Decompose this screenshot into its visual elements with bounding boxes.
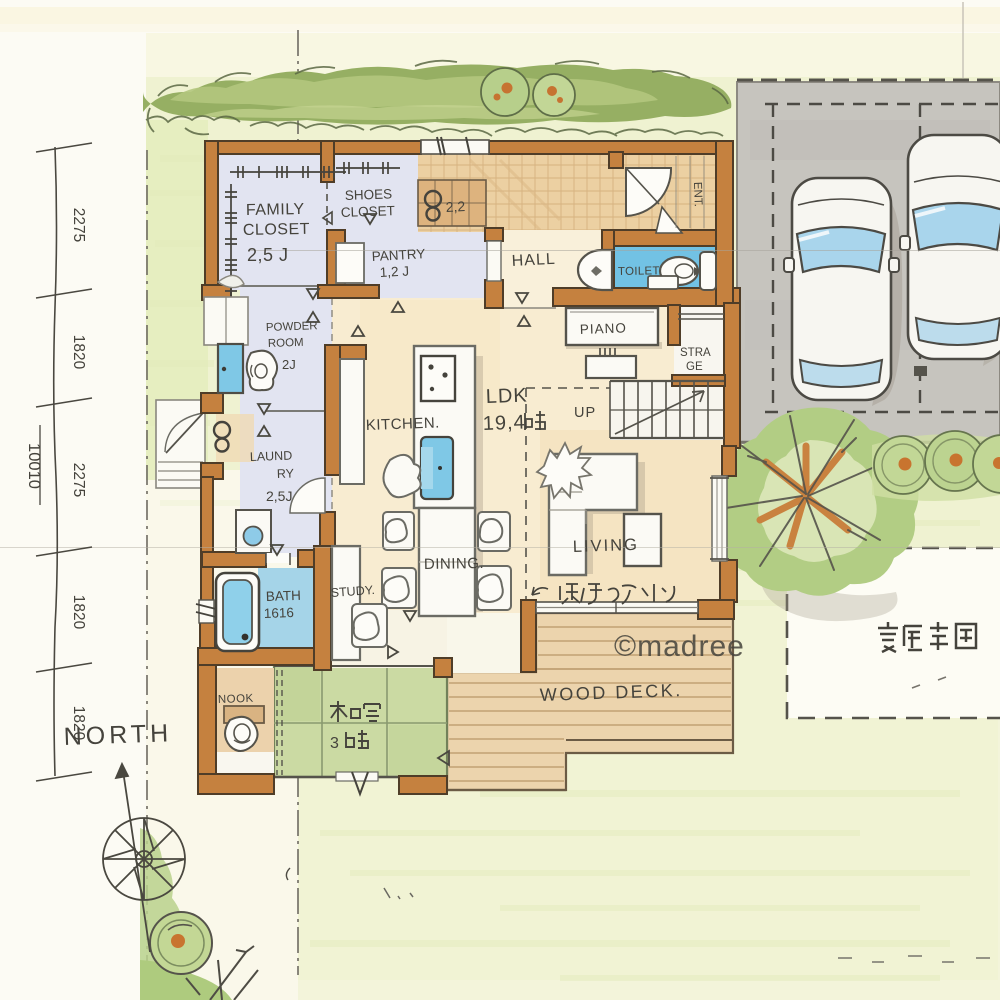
svg-text:LAUND: LAUND <box>250 449 293 464</box>
svg-text:UP: UP <box>574 405 596 421</box>
svg-text:LDK: LDK <box>485 385 528 408</box>
svg-text:CLOSET: CLOSET <box>243 221 310 239</box>
svg-text:2275: 2275 <box>70 463 87 497</box>
svg-text:3: 3 <box>330 735 339 752</box>
svg-text:BATH: BATH <box>266 588 302 604</box>
svg-text:ENT.: ENT. <box>691 182 704 207</box>
svg-text:RY: RY <box>277 466 295 481</box>
svg-text:GE: GE <box>686 361 703 373</box>
svg-text:19,4: 19,4 <box>482 412 526 435</box>
svg-text:2,5J: 2,5J <box>266 488 292 504</box>
svg-text:DINING.: DINING. <box>424 555 484 573</box>
svg-text:2275: 2275 <box>70 208 87 242</box>
svg-text:TOILET: TOILET <box>618 265 660 278</box>
svg-text:1820: 1820 <box>70 595 87 630</box>
svg-text:2J: 2J <box>282 357 296 372</box>
svg-text:KITCHEN.: KITCHEN. <box>366 414 441 434</box>
svg-text:LIVING: LIVING <box>573 536 640 556</box>
svg-text:PIANO: PIANO <box>580 320 628 337</box>
svg-text:©madree: ©madree <box>614 630 745 663</box>
svg-text:1820: 1820 <box>70 335 87 370</box>
svg-text:PANTRY: PANTRY <box>371 246 425 264</box>
svg-text:CLOSET: CLOSET <box>341 203 396 220</box>
svg-text:SHOES: SHOES <box>345 186 393 203</box>
svg-text:STRA: STRA <box>680 347 711 359</box>
svg-text:FAMILY: FAMILY <box>246 201 305 219</box>
svg-text:HALL: HALL <box>511 251 556 270</box>
svg-text:POWDER: POWDER <box>266 320 318 334</box>
svg-text:2,5 J: 2,5 J <box>247 245 289 265</box>
svg-text:1,2 J: 1,2 J <box>379 263 409 280</box>
svg-text:2,2: 2,2 <box>445 198 465 215</box>
svg-text:1616: 1616 <box>264 605 295 621</box>
svg-text:NORTH: NORTH <box>63 719 172 751</box>
svg-text:ROOM: ROOM <box>268 337 304 350</box>
svg-text:NOOK: NOOK <box>218 693 254 706</box>
